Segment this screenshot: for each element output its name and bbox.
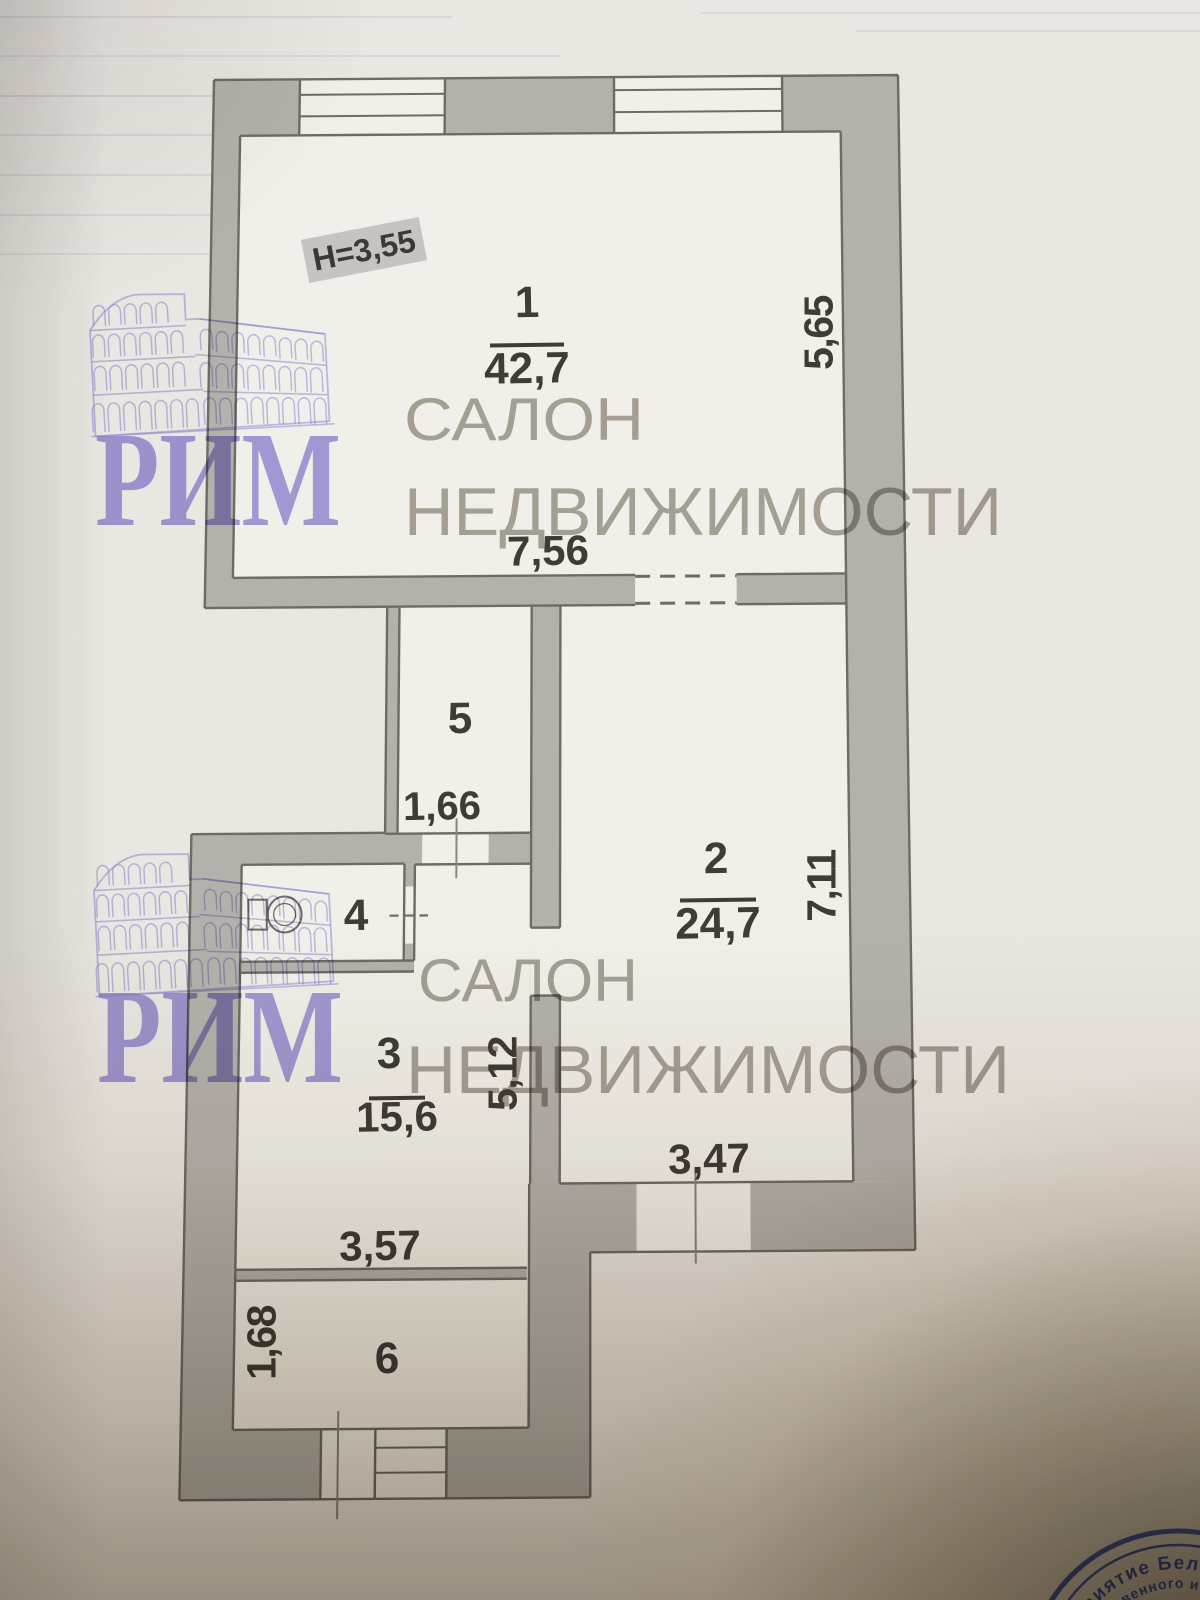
svg-text:ударственного имуще: ударственного имуще xyxy=(0,0,1200,1600)
svg-text:предприятие Белгородског: предприятие Белгородског xyxy=(0,0,1200,1600)
